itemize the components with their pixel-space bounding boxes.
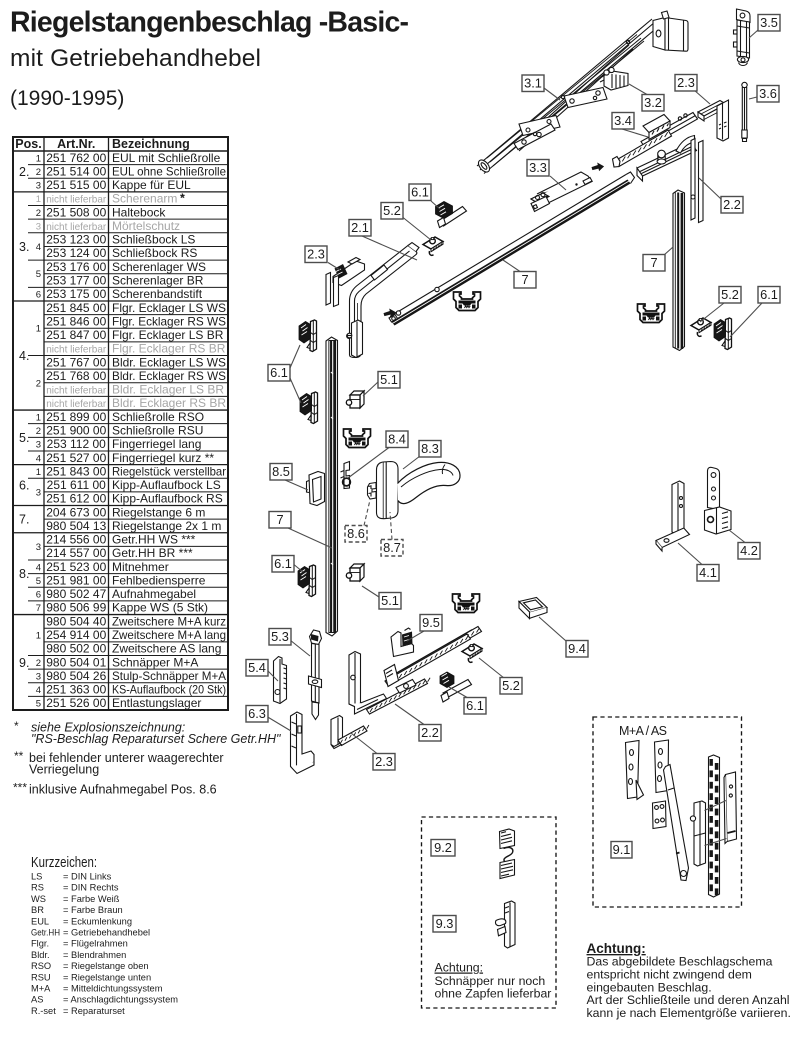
svg-text:nicht lieferbar: nicht lieferbar bbox=[46, 398, 106, 410]
svg-text:Flgr. Ecklager RS WS: Flgr. Ecklager RS WS bbox=[112, 314, 226, 328]
svg-text:3: 3 bbox=[36, 487, 41, 498]
svg-text:2.2: 2.2 bbox=[723, 197, 741, 212]
svg-text:RSU: RSU bbox=[31, 972, 51, 982]
svg-text:Bezeichnung: Bezeichnung bbox=[112, 137, 190, 151]
svg-text:Kurzzeichen:: Kurzzeichen: bbox=[31, 855, 97, 871]
svg-text:6: 6 bbox=[36, 290, 41, 301]
svg-text:Scherenbandstift: Scherenbandstift bbox=[112, 287, 203, 301]
svg-text:EUL: EUL bbox=[31, 916, 49, 926]
svg-text:3: 3 bbox=[36, 222, 41, 233]
svg-text:= Riegelstange unten: = Riegelstange unten bbox=[63, 972, 151, 982]
svg-text:Riegelstangenbeschlag -Basic-: Riegelstangenbeschlag -Basic- bbox=[10, 7, 409, 39]
svg-text:= Flügelrahmen: = Flügelrahmen bbox=[63, 939, 128, 949]
svg-text:980 504 01: 980 504 01 bbox=[46, 655, 106, 669]
svg-text:8.5: 8.5 bbox=[272, 464, 290, 479]
svg-text:Art.Nr.: Art.Nr. bbox=[57, 137, 95, 151]
svg-text:7: 7 bbox=[36, 603, 41, 614]
svg-text:7: 7 bbox=[521, 272, 528, 287]
svg-text:Schließbock LS: Schließbock LS bbox=[112, 233, 195, 247]
svg-text:Getr.HH BR ***: Getr.HH BR *** bbox=[112, 546, 193, 560]
svg-text:Achtung:: Achtung: bbox=[435, 961, 484, 975]
svg-text:8.3: 8.3 bbox=[421, 441, 439, 456]
svg-text:251 847 00: 251 847 00 bbox=[46, 328, 106, 342]
svg-text:RS: RS bbox=[31, 883, 44, 893]
svg-text:8.4: 8.4 bbox=[388, 432, 406, 447]
svg-text:Riegelstange 6 m: Riegelstange 6 m bbox=[112, 505, 205, 519]
svg-text:7: 7 bbox=[650, 255, 657, 270]
svg-text:M+A / AS: M+A / AS bbox=[619, 724, 667, 738]
svg-text:251 846 00: 251 846 00 bbox=[46, 314, 106, 328]
svg-text:2.3: 2.3 bbox=[375, 754, 393, 769]
svg-text:980 506 99: 980 506 99 bbox=[46, 601, 106, 615]
svg-text:= Farbe Weiß: = Farbe Weiß bbox=[63, 894, 120, 904]
svg-text:Pos.: Pos. bbox=[15, 137, 41, 151]
svg-text:Schließrolle RSO: Schließrolle RSO bbox=[112, 410, 204, 424]
svg-text:WS: WS bbox=[31, 894, 46, 904]
svg-text:4.2: 4.2 bbox=[740, 543, 758, 558]
svg-text:6.1: 6.1 bbox=[411, 185, 429, 200]
svg-text:= DIN Links: = DIN Links bbox=[63, 872, 112, 882]
svg-text:= Reparaturset: = Reparaturset bbox=[63, 1006, 125, 1016]
svg-text:Zweitschere AS lang: Zweitschere AS lang bbox=[112, 642, 221, 656]
svg-text:Kipp-Auflaufbock LS: Kipp-Auflaufbock LS bbox=[112, 478, 221, 492]
svg-text:253 123 00: 253 123 00 bbox=[46, 233, 106, 247]
svg-text:980 502 00: 980 502 00 bbox=[46, 642, 106, 656]
svg-text:Bldr. Ecklager RS BR: Bldr. Ecklager RS BR bbox=[112, 396, 226, 410]
svg-text:= Mitteldichtungssystem: = Mitteldichtungssystem bbox=[63, 984, 163, 994]
svg-text:1: 1 bbox=[36, 153, 41, 164]
svg-text:3.5: 3.5 bbox=[760, 15, 778, 30]
svg-text:6.3: 6.3 bbox=[248, 706, 266, 721]
svg-text:EUL mit Schließrolle: EUL mit Schließrolle bbox=[112, 151, 221, 165]
svg-text:3.1: 3.1 bbox=[524, 76, 542, 91]
svg-text:4.1: 4.1 bbox=[699, 565, 717, 580]
svg-text:3.2: 3.2 bbox=[644, 95, 662, 110]
svg-text:5.2: 5.2 bbox=[502, 678, 520, 693]
svg-text:2.3: 2.3 bbox=[307, 247, 325, 262]
svg-text:Bldr.: Bldr. bbox=[31, 950, 50, 960]
svg-text:3: 3 bbox=[36, 440, 41, 451]
svg-text:2: 2 bbox=[36, 167, 41, 178]
svg-text:5: 5 bbox=[36, 269, 41, 280]
svg-text:5.1: 5.1 bbox=[381, 593, 399, 608]
svg-text:= Getriebehandhebel: = Getriebehandhebel bbox=[63, 928, 150, 938]
svg-text:980 504 40: 980 504 40 bbox=[46, 614, 106, 628]
svg-text:nicht lieferbar: nicht lieferbar bbox=[46, 344, 106, 356]
svg-text:Aufnahmegabel: Aufnahmegabel bbox=[112, 587, 196, 601]
svg-text:Schließrolle RSU: Schließrolle RSU bbox=[112, 424, 203, 438]
svg-text:8.7: 8.7 bbox=[383, 540, 401, 555]
svg-text:9.: 9. bbox=[19, 656, 29, 670]
svg-text:Verriegelung: Verriegelung bbox=[29, 763, 99, 777]
svg-text:Fingerriegel lang: Fingerriegel lang bbox=[112, 437, 201, 451]
svg-text:3.3: 3.3 bbox=[529, 160, 547, 175]
svg-text:6.: 6. bbox=[19, 479, 29, 493]
svg-text:3.4: 3.4 bbox=[614, 113, 632, 128]
svg-text:254 914 00: 254 914 00 bbox=[46, 628, 106, 642]
svg-text:253 112 00: 253 112 00 bbox=[47, 437, 106, 451]
svg-text:251 515 00: 251 515 00 bbox=[46, 178, 106, 192]
svg-text:Schließbock RS: Schließbock RS bbox=[112, 246, 197, 260]
svg-text:2.3: 2.3 bbox=[677, 75, 695, 90]
svg-text:(1990-1995): (1990-1995) bbox=[10, 87, 124, 110]
svg-text:253 124 00: 253 124 00 bbox=[46, 246, 106, 260]
svg-text:6.1: 6.1 bbox=[274, 556, 292, 571]
svg-text:Flgr. Ecklager LS WS: Flgr. Ecklager LS WS bbox=[112, 301, 226, 315]
svg-text:Kappe WS (5 Stk): Kappe WS (5 Stk) bbox=[112, 601, 208, 615]
svg-text:204 673 00: 204 673 00 bbox=[46, 505, 106, 519]
svg-text:251 900 00: 251 900 00 bbox=[46, 424, 106, 438]
svg-text:= Anschlagdichtungssystem: = Anschlagdichtungssystem bbox=[63, 995, 178, 1005]
svg-text:nicht lieferbar: nicht lieferbar bbox=[46, 194, 106, 206]
svg-text:8.6: 8.6 bbox=[347, 526, 365, 541]
svg-text:251 526 00: 251 526 00 bbox=[46, 696, 106, 710]
svg-text:5.3: 5.3 bbox=[271, 629, 289, 644]
svg-text:2.1: 2.1 bbox=[351, 220, 369, 235]
svg-text:5.2: 5.2 bbox=[383, 203, 401, 218]
svg-text:"RS-Beschlag Reparaturset Sche: "RS-Beschlag Reparaturset Schere Getr.HH… bbox=[31, 732, 281, 746]
svg-text:Entlastungslager: Entlastungslager bbox=[112, 696, 201, 710]
svg-text:RSO: RSO bbox=[31, 961, 51, 971]
svg-text:2.: 2. bbox=[19, 165, 29, 179]
svg-text:Flgr. Ecklager RS BR: Flgr. Ecklager RS BR bbox=[112, 342, 226, 356]
svg-text:Scherenlager BR: Scherenlager BR bbox=[112, 274, 204, 288]
svg-text:253 176 00: 253 176 00 bbox=[46, 260, 106, 274]
svg-text:3: 3 bbox=[36, 542, 41, 553]
svg-text:Kipp-Auflaufbock RS: Kipp-Auflaufbock RS bbox=[112, 492, 223, 506]
svg-text:5.4: 5.4 bbox=[248, 660, 266, 675]
svg-text:Scherenarm ​*: Scherenarm ​* bbox=[112, 192, 186, 206]
svg-text:Zweitschere M+A lang: Zweitschere M+A lang bbox=[112, 628, 226, 642]
svg-text:Das abgebildete Beschlagschema: Das abgebildete Beschlagschema bbox=[587, 955, 773, 969]
svg-text:KS-Auflaufbock (20 Stk): KS-Auflaufbock (20 Stk) bbox=[112, 683, 226, 697]
svg-text:9.4: 9.4 bbox=[568, 641, 586, 656]
svg-text:9.5: 9.5 bbox=[422, 615, 440, 630]
svg-text:**: ** bbox=[14, 749, 24, 763]
svg-text:251 612 00: 251 612 00 bbox=[46, 492, 106, 506]
svg-text:8.: 8. bbox=[19, 567, 29, 581]
svg-text:nicht lieferbar: nicht lieferbar bbox=[46, 221, 106, 233]
svg-text:251 762 00: 251 762 00 bbox=[46, 151, 106, 165]
svg-text:3.: 3. bbox=[19, 240, 29, 254]
svg-text:5.2: 5.2 bbox=[721, 287, 739, 302]
svg-text:2: 2 bbox=[36, 378, 41, 389]
svg-text:= Blendrahmen: = Blendrahmen bbox=[63, 950, 126, 960]
svg-text:Fehlbediensperre: Fehlbediensperre bbox=[112, 574, 206, 588]
svg-text:980 502 47: 980 502 47 bbox=[46, 587, 106, 601]
svg-text:Getr.HH: Getr.HH bbox=[31, 928, 60, 938]
svg-text:entspricht nicht zwingend dem: entspricht nicht zwingend dem bbox=[587, 967, 752, 981]
svg-text:5: 5 bbox=[36, 576, 41, 587]
svg-text:251 514 00: 251 514 00 bbox=[46, 164, 106, 178]
svg-text:= Farbe Braun: = Farbe Braun bbox=[63, 905, 123, 915]
svg-text:mit Getriebehandhebel: mit Getriebehandhebel bbox=[10, 45, 261, 72]
svg-text:2: 2 bbox=[36, 208, 41, 219]
svg-text:ohne Zapfen lieferbar: ohne Zapfen lieferbar bbox=[435, 987, 552, 1001]
svg-text:251 611 00: 251 611 00 bbox=[47, 478, 106, 492]
svg-text:251 899 00: 251 899 00 bbox=[46, 410, 106, 424]
svg-text:Getr.HH WS ***: Getr.HH WS *** bbox=[112, 533, 196, 547]
svg-text:1: 1 bbox=[36, 194, 41, 205]
svg-text:7: 7 bbox=[276, 512, 283, 527]
svg-text:9.3: 9.3 bbox=[436, 916, 454, 931]
svg-text:2: 2 bbox=[36, 426, 41, 437]
svg-text:1: 1 bbox=[36, 324, 41, 335]
svg-text:Flgr. Ecklager LS BR: Flgr. Ecklager LS BR bbox=[112, 328, 224, 342]
svg-text:BR: BR bbox=[31, 905, 44, 915]
svg-text:251 508 00: 251 508 00 bbox=[46, 205, 106, 219]
svg-text:Kappe für EUL: Kappe für EUL bbox=[112, 178, 191, 192]
svg-text:6.1: 6.1 bbox=[760, 287, 778, 302]
svg-text:kann je nach Elementgröße vari: kann je nach Elementgröße variieren. bbox=[587, 1006, 791, 1020]
svg-text:3: 3 bbox=[36, 181, 41, 192]
svg-text:R.-set: R.-set bbox=[31, 1006, 56, 1016]
svg-text:Fingerriegel kurz **: Fingerriegel kurz ** bbox=[112, 451, 214, 465]
svg-text:251 767 00: 251 767 00 bbox=[46, 355, 106, 369]
svg-text:980 504 26: 980 504 26 bbox=[46, 669, 106, 683]
svg-text:Haltebock: Haltebock bbox=[112, 205, 166, 219]
svg-text:9.2: 9.2 bbox=[434, 840, 452, 855]
svg-text:= DIN Rechts: = DIN Rechts bbox=[63, 883, 119, 893]
svg-text:M+A: M+A bbox=[31, 984, 51, 994]
svg-text:4: 4 bbox=[36, 685, 41, 696]
svg-text:Art der Schließteile und deren: Art der Schließteile und deren Anzahl bbox=[587, 993, 790, 1007]
svg-text:2.2: 2.2 bbox=[421, 725, 439, 740]
svg-text:Bldr. Ecklager RS WS: Bldr. Ecklager RS WS bbox=[112, 369, 226, 383]
svg-text:inklusive Aufnahmegabel Pos. 8: inklusive Aufnahmegabel Pos. 8.6 bbox=[29, 783, 217, 797]
svg-text:Scherenlager WS: Scherenlager WS bbox=[112, 260, 206, 274]
svg-text:251 981 00: 251 981 00 bbox=[46, 574, 106, 588]
svg-text:251 768 00: 251 768 00 bbox=[46, 369, 106, 383]
svg-text:Mitnehmer: Mitnehmer bbox=[112, 560, 169, 574]
svg-text:nicht lieferbar: nicht lieferbar bbox=[46, 385, 106, 397]
svg-text:1: 1 bbox=[36, 631, 41, 642]
svg-text:980 504 13: 980 504 13 bbox=[46, 519, 106, 533]
svg-text:EUL ohne Schließrolle: EUL ohne Schließrolle bbox=[112, 164, 226, 178]
svg-text:LS: LS bbox=[31, 872, 42, 882]
svg-text:*: * bbox=[14, 719, 19, 733]
svg-text:= Riegelstange oben: = Riegelstange oben bbox=[63, 961, 149, 971]
svg-text:251 527 00: 251 527 00 bbox=[46, 451, 106, 465]
svg-text:Stulp-Schnäpper M+A: Stulp-Schnäpper M+A bbox=[112, 669, 226, 683]
svg-text:= Eckumlenkung: = Eckumlenkung bbox=[63, 916, 132, 926]
svg-text:4.: 4. bbox=[19, 349, 29, 363]
svg-text:251 845 00: 251 845 00 bbox=[46, 301, 106, 315]
svg-text:2: 2 bbox=[36, 658, 41, 669]
svg-text:214 556 00: 214 556 00 bbox=[46, 533, 106, 547]
svg-text:Schnäpper M+A: Schnäpper M+A bbox=[112, 655, 198, 669]
svg-text:6.1: 6.1 bbox=[270, 365, 288, 380]
svg-text:1: 1 bbox=[36, 412, 41, 423]
svg-text:4: 4 bbox=[36, 453, 41, 464]
svg-text:251 523 00: 251 523 00 bbox=[46, 560, 106, 574]
svg-text:5.1: 5.1 bbox=[380, 372, 398, 387]
svg-text:1: 1 bbox=[36, 467, 41, 478]
svg-text:Flgr.: Flgr. bbox=[31, 939, 49, 949]
svg-text:253 177 00: 253 177 00 bbox=[46, 274, 106, 288]
svg-text:7.: 7. bbox=[19, 513, 29, 527]
svg-text:3.6: 3.6 bbox=[759, 86, 777, 101]
svg-text:Bldr. Ecklager LS WS: Bldr. Ecklager LS WS bbox=[112, 355, 226, 369]
svg-text:Riegelstange 2x 1 m: Riegelstange 2x 1 m bbox=[112, 519, 221, 533]
svg-text:Mörtelschutz: Mörtelschutz bbox=[112, 219, 180, 233]
svg-text:3: 3 bbox=[36, 671, 41, 682]
svg-text:Bldr. Ecklager LS BR: Bldr. Ecklager LS BR bbox=[112, 383, 224, 397]
svg-text:4: 4 bbox=[36, 562, 41, 573]
svg-text:***: *** bbox=[13, 781, 27, 795]
svg-text:251 363 00: 251 363 00 bbox=[46, 683, 106, 697]
svg-text:eingebauten Beschlag.: eingebauten Beschlag. bbox=[587, 980, 712, 994]
svg-text:AS: AS bbox=[31, 995, 43, 1005]
svg-text:251 843 00: 251 843 00 bbox=[46, 464, 106, 478]
svg-text:5: 5 bbox=[36, 699, 41, 710]
svg-text:5.: 5. bbox=[19, 431, 29, 445]
svg-text:*: * bbox=[180, 191, 185, 205]
svg-text:6.1: 6.1 bbox=[466, 698, 484, 713]
svg-text:253 175 00: 253 175 00 bbox=[46, 287, 106, 301]
svg-text:214 557 00: 214 557 00 bbox=[46, 546, 106, 560]
svg-text:6: 6 bbox=[36, 590, 41, 601]
svg-text:9.1: 9.1 bbox=[613, 842, 631, 857]
svg-text:Zweitschere M+A kurz: Zweitschere M+A kurz bbox=[112, 614, 226, 628]
svg-text:4: 4 bbox=[36, 242, 41, 253]
svg-text:Riegelstück verstellbar: Riegelstück verstellbar bbox=[112, 464, 226, 478]
